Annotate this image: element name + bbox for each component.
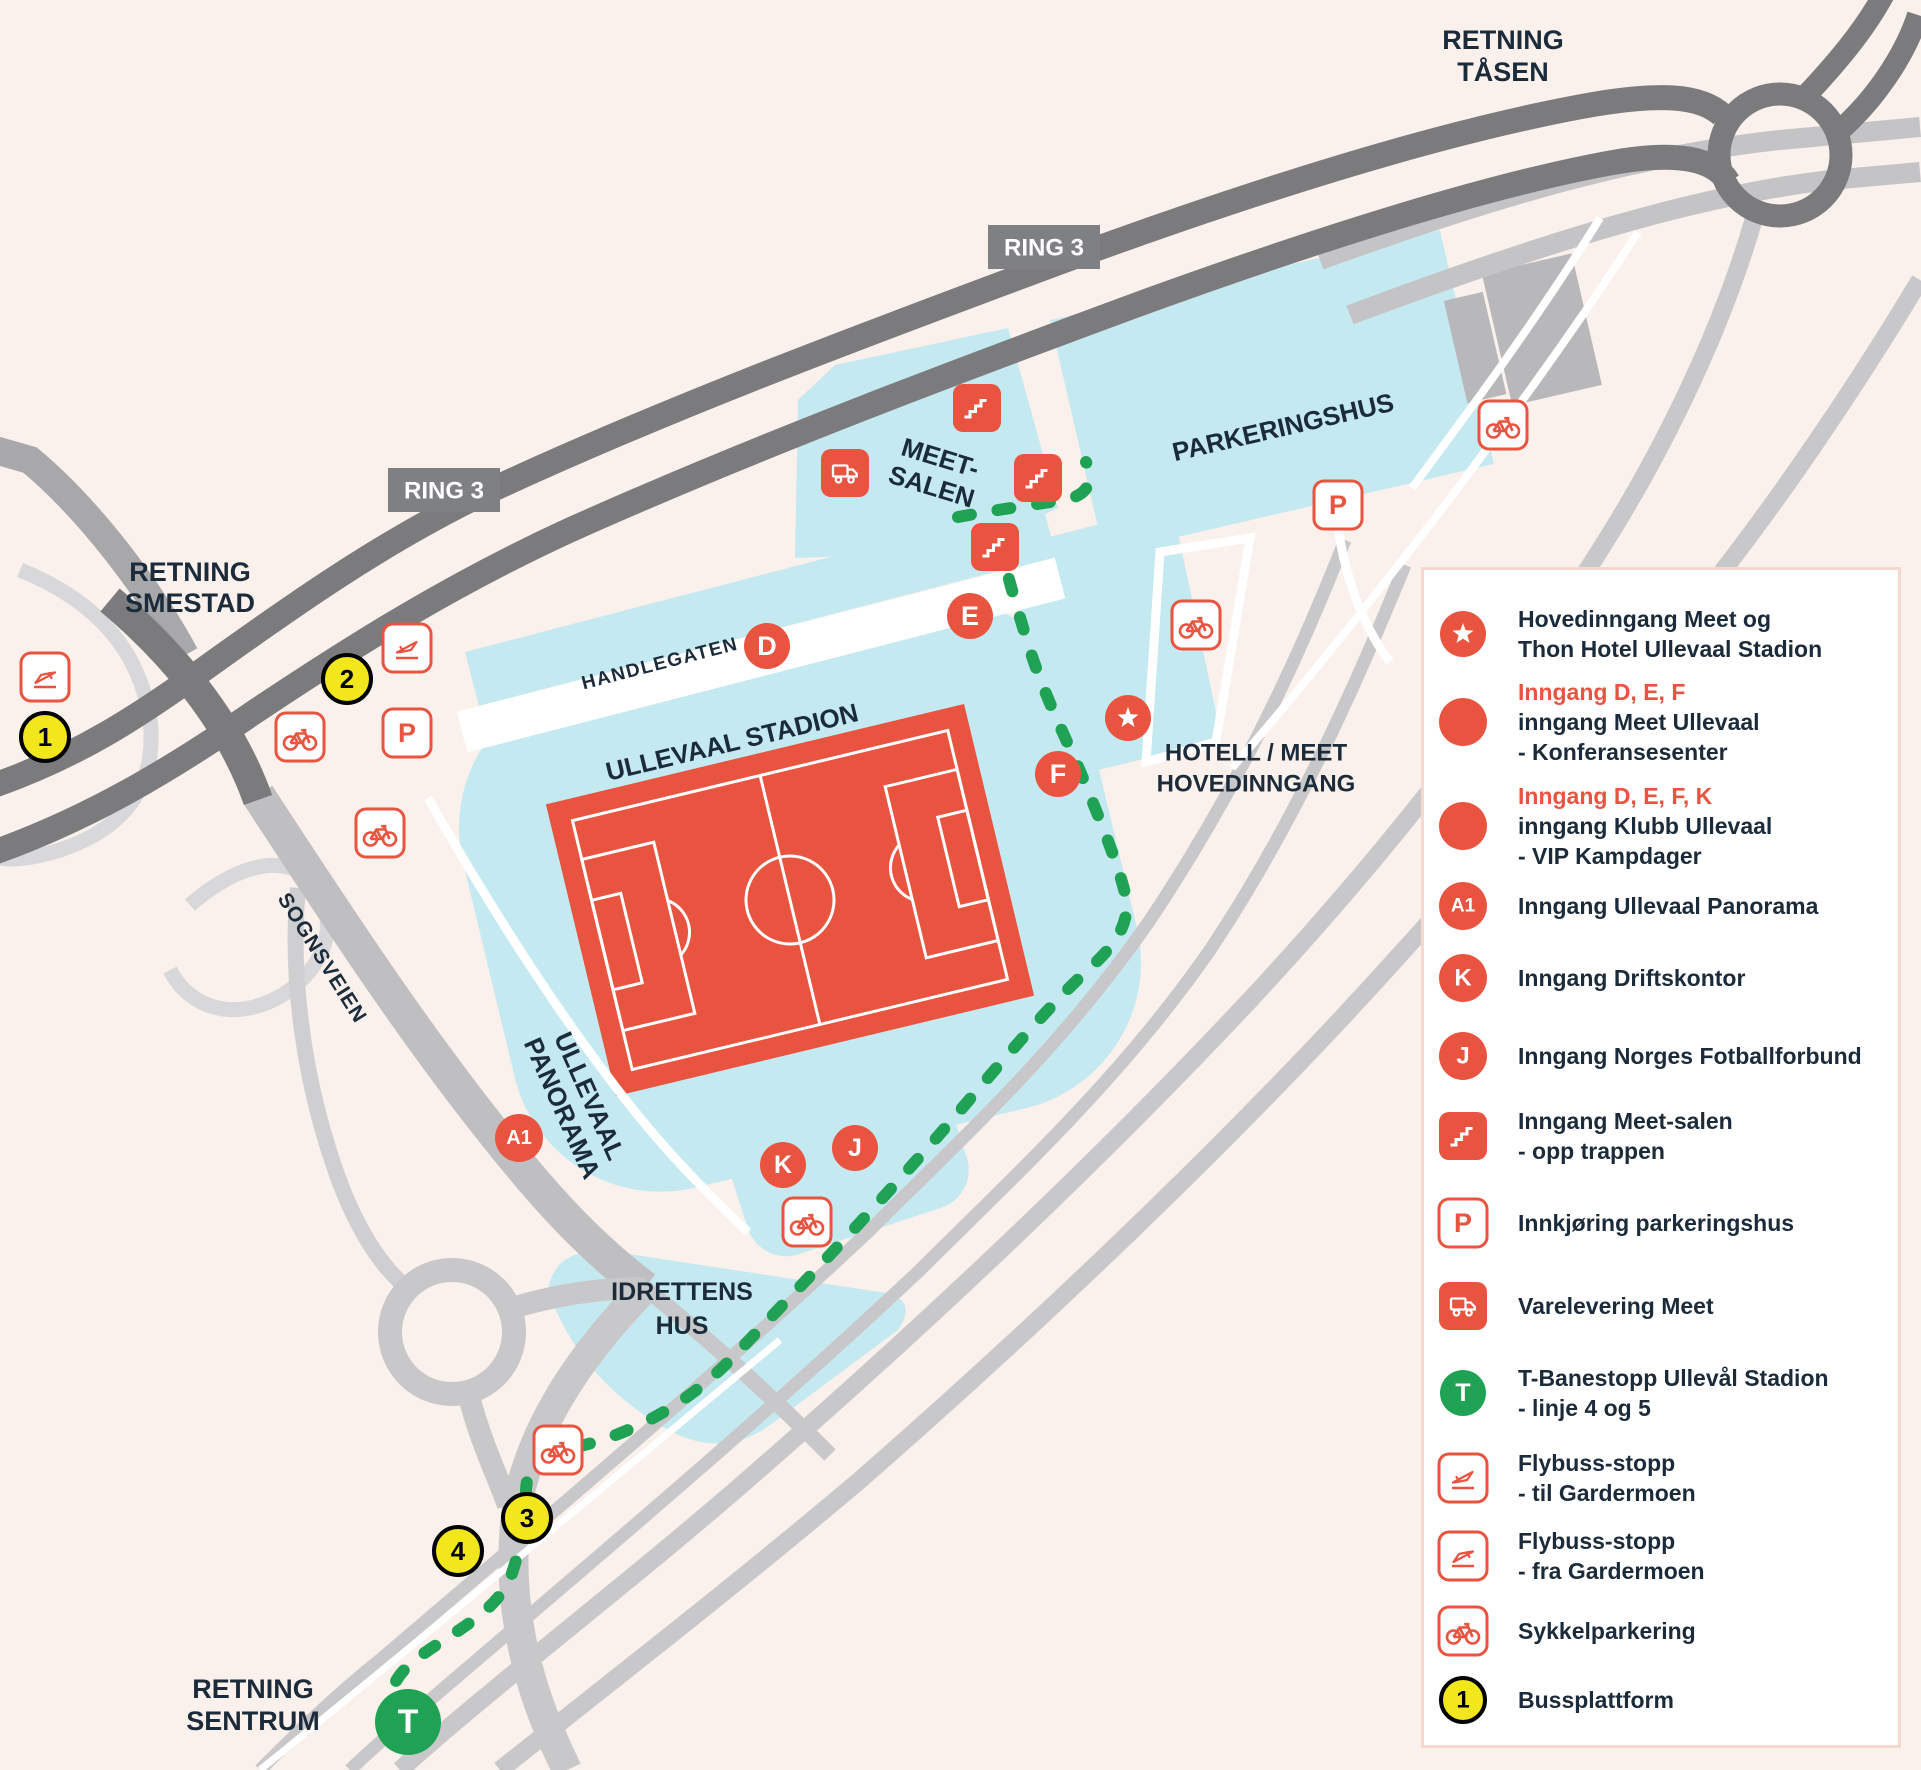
svg-text:K: K (774, 1151, 792, 1179)
svg-text:P: P (398, 718, 416, 748)
legend-text: T-Banestopp Ullevål Stadion (1518, 1363, 1829, 1393)
svg-text:3: 3 (520, 1503, 534, 1533)
stairs-icon (971, 523, 1019, 571)
svg-text:K: K (1454, 965, 1472, 992)
label-retning-tasen: RETNING (1442, 25, 1564, 55)
legend-item-parkeringshus: P Innkjøring parkeringshus (1436, 1196, 1890, 1250)
k-circle-icon: K (1436, 951, 1490, 1005)
svg-text:RING 3: RING 3 (404, 478, 484, 505)
marker-entrance-a1: A1 (495, 1114, 543, 1162)
bike-icon (534, 1426, 582, 1474)
legend-text: inngang Meet Ullevaal (1518, 707, 1760, 737)
plane-takeoff-icon (1436, 1451, 1490, 1505)
label-retning-smestad: RETNING (129, 557, 251, 587)
marker-entrance-k: K (760, 1142, 806, 1188)
label-retning-sentrum: RETNING (192, 1674, 314, 1704)
truck-icon (1436, 1279, 1490, 1333)
svg-text:RING 3: RING 3 (1004, 235, 1084, 262)
marker-entrance-f: F (1035, 751, 1081, 797)
legend-item-inngang-defk: Inngang D, E, F, Kinngang Klubb Ullevaal… (1436, 781, 1890, 871)
marker-entrance-j: J (832, 1125, 878, 1171)
parking-icon: P (383, 709, 431, 757)
svg-text:E: E (961, 601, 979, 631)
legend-text: Innkjøring parkeringshus (1518, 1208, 1794, 1238)
legend-text: Hovedinngang Meet og (1518, 604, 1822, 634)
j-circle-icon: J (1436, 1029, 1490, 1083)
svg-text:P: P (1454, 1208, 1472, 1238)
legend-text: - opp trappen (1518, 1136, 1733, 1166)
legend-panel: Hovedinngang Meet ogThon Hotel Ullevaal … (1421, 567, 1901, 1748)
legend-text: Bussplattform (1518, 1685, 1674, 1715)
legend-title: Inngang D, E, F (1518, 677, 1760, 707)
label-idrettens-hus: IDRETTENS (611, 1278, 753, 1306)
legend-text: - Konferansesenter (1518, 737, 1760, 767)
legend-text: - VIP Kampdager (1518, 841, 1772, 871)
ullevaal-stadion-map: RING 3 RING 3 RETNING TÅSEN RETNING SMES… (0, 0, 1921, 1770)
legend-item-tbane: T T-Banestopp Ullevål Stadion- linje 4 o… (1436, 1363, 1890, 1423)
svg-text:J: J (848, 1134, 862, 1162)
svg-text:HUS: HUS (656, 1312, 709, 1340)
svg-text:A1: A1 (1451, 896, 1476, 917)
bike-icon (1436, 1604, 1490, 1658)
legend-item-panorama: A1 Inngang Ullevaal Panorama (1436, 879, 1890, 933)
legend-item-inngang-def: Inngang D, E, Finngang Meet Ullevaal- Ko… (1436, 677, 1890, 767)
label-hotell: HOTELL / MEET (1165, 740, 1348, 767)
legend-text: Inngang Ullevaal Panorama (1518, 891, 1818, 921)
legend-title: Inngang D, E, F, K (1518, 781, 1772, 811)
plane-landing-icon (1436, 1529, 1490, 1583)
legend-item-flybuss-til: Flybuss-stopp- til Gardermoen (1436, 1448, 1890, 1508)
legend-item-varelevering: Varelevering Meet (1436, 1279, 1890, 1333)
legend-text: Sykkelparkering (1518, 1616, 1696, 1646)
bus-platform-icon: 1 (1436, 1673, 1490, 1727)
parking-entry-street (1338, 528, 1390, 662)
bike-icon (783, 1198, 831, 1246)
legend-item-fotballforbund: J Inngang Norges Fotballforbund (1436, 1029, 1890, 1083)
svg-text:SMESTAD: SMESTAD (125, 588, 255, 618)
entrance-circle-icon (1436, 695, 1490, 749)
legend-item-sykkelparkering: Sykkelparkering (1436, 1604, 1890, 1658)
legend-text: Inngang Norges Fotballforbund (1518, 1041, 1862, 1071)
roundabout-south (390, 1270, 514, 1394)
legend-item-driftskontor: K Inngang Driftskontor (1436, 951, 1890, 1005)
stairs-icon (1436, 1109, 1490, 1163)
bike-icon (1479, 401, 1527, 449)
legend-item-meet-salen: Inngang Meet-salen- opp trappen (1436, 1106, 1890, 1166)
legend-text: inngang Klubb Ullevaal (1518, 811, 1772, 841)
bike-icon (356, 809, 404, 857)
truck-icon (821, 449, 869, 497)
legend-item-flybuss-fra: Flybuss-stopp- fra Gardermoen (1436, 1526, 1890, 1586)
marker-entrance-e: E (947, 593, 993, 639)
legend-text: Thon Hotel Ullevaal Stadion (1518, 634, 1822, 664)
roundabout-south-stub-s (468, 1393, 508, 1505)
stairs-icon (953, 384, 1001, 432)
legend-text: - linje 4 og 5 (1518, 1393, 1829, 1423)
bike-icon (276, 713, 324, 761)
svg-text:T: T (398, 1703, 419, 1741)
legend-text: - fra Gardermoen (1518, 1556, 1705, 1586)
svg-text:TÅSEN: TÅSEN (1457, 56, 1549, 87)
svg-text:2: 2 (340, 664, 354, 694)
svg-text:1: 1 (1456, 1687, 1469, 1714)
legend-item-bussplattform: 1 Bussplattform (1436, 1673, 1890, 1727)
parking-icon: P (1436, 1196, 1490, 1250)
bike-icon (1172, 601, 1220, 649)
marker-bus-platform-3: 3 (503, 1494, 551, 1542)
legend-item-hovedinngang: Hovedinngang Meet ogThon Hotel Ullevaal … (1436, 604, 1890, 664)
svg-text:P: P (1329, 490, 1347, 520)
parking-icon: P (1314, 481, 1362, 529)
svg-text:F: F (1050, 759, 1067, 789)
main-entrance-star-marker (1105, 695, 1151, 741)
legend-text: Flybuss-stopp (1518, 1526, 1705, 1556)
legend-text: Inngang Meet-salen (1518, 1106, 1733, 1136)
svg-text:A1: A1 (506, 1127, 532, 1149)
svg-text:T: T (1455, 1379, 1470, 1407)
svg-text:SENTRUM: SENTRUM (186, 1706, 320, 1736)
tbane-icon: T (1436, 1366, 1490, 1420)
plane-landing-icon (21, 653, 69, 701)
star-icon (1105, 695, 1151, 741)
svg-text:1: 1 (38, 722, 52, 752)
legend-text: - til Gardermoen (1518, 1478, 1696, 1508)
tbane-stop-marker: T (375, 1689, 441, 1755)
entrance-circle-icon (1436, 799, 1490, 853)
svg-text:D: D (757, 631, 777, 661)
marker-bus-platform-2: 2 (323, 655, 371, 703)
marker-entrance-d: D (744, 623, 790, 669)
svg-text:J: J (1456, 1043, 1469, 1070)
a1-circle-icon: A1 (1436, 879, 1490, 933)
legend-text: Inngang Driftskontor (1518, 963, 1745, 993)
marker-bus-platform-1: 1 (21, 713, 69, 761)
ring3-badge-east: RING 3 (988, 225, 1100, 269)
svg-text:4: 4 (451, 1536, 466, 1566)
star-icon (1436, 607, 1490, 661)
legend-text: Varelevering Meet (1518, 1291, 1714, 1321)
south-white-path (260, 1340, 780, 1770)
ring3-badge-west: RING 3 (388, 468, 500, 512)
svg-text:HOVEDINNGANG: HOVEDINNGANG (1157, 771, 1356, 798)
plane-takeoff-icon (383, 624, 431, 672)
legend-text: Flybuss-stopp (1518, 1448, 1696, 1478)
stairs-icon (1014, 454, 1062, 502)
marker-bus-platform-4: 4 (434, 1527, 482, 1575)
